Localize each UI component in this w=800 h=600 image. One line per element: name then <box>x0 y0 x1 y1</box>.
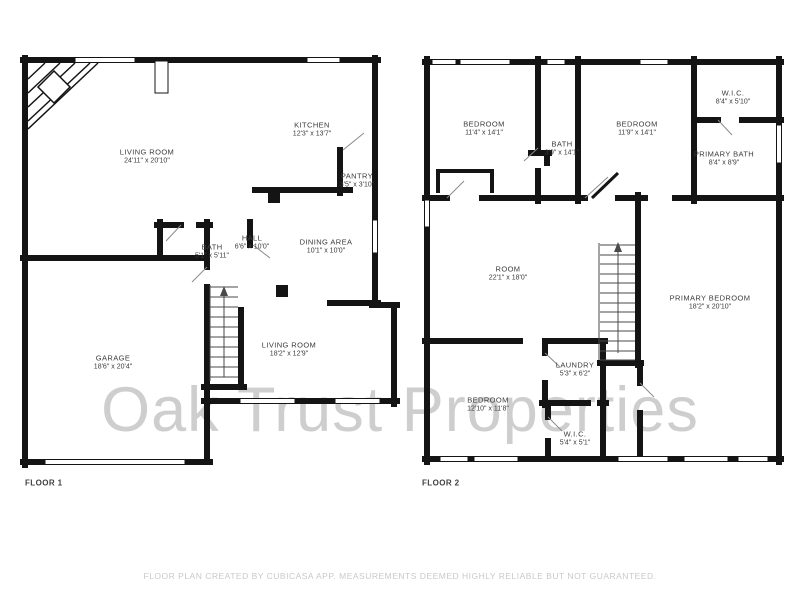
stairs-direction-arrow <box>614 242 622 252</box>
room-label-bath: BATH5'1" x 5'11" <box>195 243 229 260</box>
room-name: BATH <box>545 140 580 149</box>
floor-2-label: FLOOR 2 <box>422 479 459 488</box>
room-name: BEDROOM <box>616 120 658 129</box>
room-name: PRIMARY BEDROOM <box>670 294 751 303</box>
room-label-w-i-c-: W.I.C.5'4" x 5'1" <box>560 430 591 447</box>
floor-1-label: FLOOR 1 <box>25 479 62 488</box>
room-label-hall: HALL6'6" x 10'0" <box>235 234 270 251</box>
room-name: KITCHEN <box>293 121 331 130</box>
room-dimensions: 5'1" x 5'11" <box>195 253 229 260</box>
room-dimensions: 10'1" x 10'0" <box>300 248 353 255</box>
room-name: LIVING ROOM <box>120 148 174 157</box>
floor-plan-page: Oak Trust Properties <box>0 0 800 600</box>
room-name: PRIMARY BATH <box>694 150 754 159</box>
room-name: BATH <box>195 243 229 252</box>
room-name: DINING AREA <box>300 238 353 247</box>
room-dimensions: 12'3" x 13'7" <box>293 131 331 138</box>
room-label-bedroom: BEDROOM12'10" x 11'8" <box>467 396 509 413</box>
room-name: BEDROOM <box>463 120 505 129</box>
room-name: GARAGE <box>94 354 132 363</box>
room-dimensions: 3'5" x 3'10" <box>340 182 375 189</box>
floor-1-plan <box>20 55 400 469</box>
room-name: W.I.C. <box>716 89 751 98</box>
room-name: LAUNDRY <box>556 361 595 370</box>
room-name: BEDROOM <box>467 396 509 405</box>
room-name: W.I.C. <box>560 430 591 439</box>
bedroom-closet-chamfer <box>592 173 618 198</box>
bedroom-closet <box>438 171 492 193</box>
room-label-dining-area: DINING AREA10'1" x 10'0" <box>300 238 353 255</box>
room-label-kitchen: KITCHEN12'3" x 13'7" <box>293 121 331 138</box>
room-label-bedroom: BEDROOM11'9" x 14'1" <box>616 120 658 137</box>
room-label-room: ROOM22'1" x 18'0" <box>489 265 527 282</box>
room-dimensions: 8'4" x 8'9" <box>694 160 754 167</box>
room-dimensions: 18'2" x 12'9" <box>262 351 316 358</box>
room-dimensions: 12'10" x 11'8" <box>467 406 509 413</box>
room-dimensions: 18'6" x 20'4" <box>94 364 132 371</box>
room-label-primary-bedroom: PRIMARY BEDROOM18'2" x 20'10" <box>670 294 751 311</box>
room-label-living-room: LIVING ROOM24'11" x 20'10" <box>120 148 174 165</box>
floor-1-columns <box>268 192 288 297</box>
room-label-pantry: PANTRY3'5" x 3'10" <box>340 172 375 189</box>
room-label-bath: BATH3'9" x 14'1" <box>545 140 580 157</box>
room-name: HALL <box>235 234 270 243</box>
room-name: ROOM <box>489 265 527 274</box>
room-dimensions: 3'9" x 14'1" <box>545 150 580 157</box>
corner-fireplace-hatch <box>28 63 98 129</box>
room-dimensions: 5'4" x 5'1" <box>560 440 591 447</box>
room-dimensions: 11'4" x 14'1" <box>463 130 505 137</box>
room-dimensions: 24'11" x 20'10" <box>120 158 174 165</box>
room-label-primary-bath: PRIMARY BATH8'4" x 8'9" <box>694 150 754 167</box>
room-label-living-room: LIVING ROOM18'2" x 12'9" <box>262 341 316 358</box>
room-name: PANTRY <box>340 172 375 181</box>
room-label-laundry: LAUNDRY5'3" x 6'2" <box>556 361 595 378</box>
room-dimensions: 8'4" x 5'10" <box>716 99 751 106</box>
room-label-w-i-c-: W.I.C.8'4" x 5'10" <box>716 89 751 106</box>
room-label-bedroom: BEDROOM11'4" x 14'1" <box>463 120 505 137</box>
disclaimer-text: FLOOR PLAN CREATED BY CUBICASA APP. MEAS… <box>0 571 800 581</box>
room-dimensions: 6'6" x 10'0" <box>235 244 270 251</box>
room-dimensions: 22'1" x 18'0" <box>489 275 527 282</box>
room-dimensions: 11'9" x 14'1" <box>616 130 658 137</box>
room-dimensions: 5'3" x 6'2" <box>556 371 595 378</box>
room-dimensions: 18'2" x 20'10" <box>670 304 751 311</box>
room-label-garage: GARAGE18'6" x 20'4" <box>94 354 132 371</box>
floor-1-stairs <box>210 285 238 381</box>
room-name: LIVING ROOM <box>262 341 316 350</box>
